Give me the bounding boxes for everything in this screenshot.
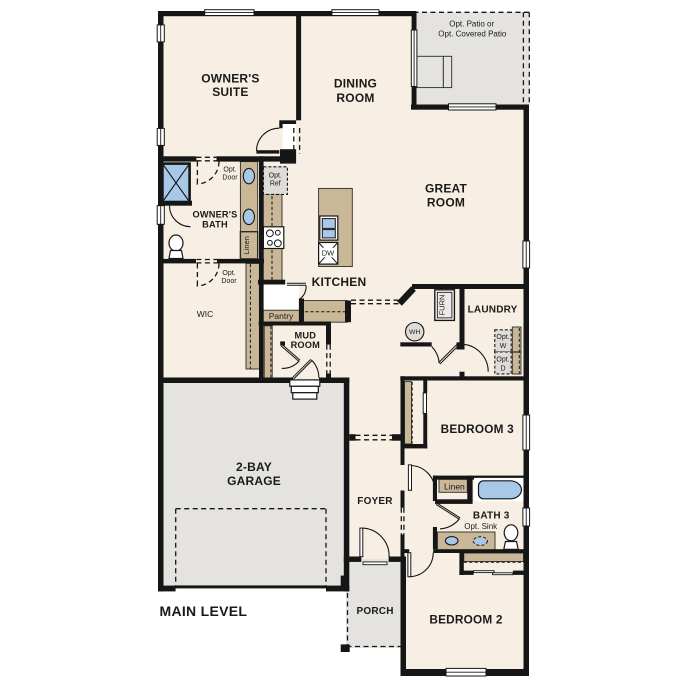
svg-text:Opt. Sink: Opt. Sink <box>464 522 498 531</box>
svg-text:Opt.: Opt. <box>496 357 509 364</box>
svg-text:KITCHEN: KITCHEN <box>312 275 367 289</box>
svg-text:BATH 3: BATH 3 <box>473 510 510 521</box>
svg-text:DINING: DINING <box>334 77 377 91</box>
svg-text:W: W <box>500 343 507 350</box>
svg-text:D: D <box>500 366 505 373</box>
svg-text:Opt.: Opt. <box>223 167 236 174</box>
svg-text:ROOM: ROOM <box>427 196 465 210</box>
svg-text:ROOM: ROOM <box>336 91 374 105</box>
svg-text:GARAGE: GARAGE <box>227 474 281 488</box>
svg-text:BEDROOM 2: BEDROOM 2 <box>429 613 502 627</box>
svg-text:LAUNDRY: LAUNDRY <box>468 304 518 315</box>
svg-text:Opt. Covered Patio: Opt. Covered Patio <box>438 30 507 39</box>
svg-text:Ref: Ref <box>270 181 281 188</box>
svg-text:OWNER'S: OWNER'S <box>201 71 259 85</box>
svg-text:Linen: Linen <box>444 482 465 492</box>
svg-text:Opt.: Opt. <box>222 270 235 277</box>
svg-text:MUD: MUD <box>295 330 317 340</box>
svg-text:ROOM: ROOM <box>291 340 321 350</box>
svg-text:OWNER'S: OWNER'S <box>193 210 238 220</box>
svg-text:Opt.: Opt. <box>269 173 282 180</box>
svg-text:MAIN LEVEL: MAIN LEVEL <box>160 603 248 619</box>
svg-text:BEDROOM 3: BEDROOM 3 <box>441 422 514 436</box>
svg-text:DW: DW <box>322 248 335 257</box>
svg-text:WIC: WIC <box>197 309 214 319</box>
svg-text:BATH: BATH <box>202 220 228 230</box>
svg-text:FOYER: FOYER <box>357 496 393 507</box>
svg-text:Door: Door <box>222 175 238 182</box>
svg-text:GREAT: GREAT <box>425 181 468 195</box>
svg-text:SUITE: SUITE <box>212 85 248 99</box>
svg-text:2-BAY: 2-BAY <box>236 460 272 474</box>
svg-text:PORCH: PORCH <box>357 606 394 617</box>
svg-text:FURN: FURN <box>438 295 447 316</box>
svg-text:Pantry: Pantry <box>269 311 294 321</box>
svg-text:Door: Door <box>221 278 237 285</box>
svg-text:Linen: Linen <box>242 236 251 254</box>
svg-text:WH: WH <box>409 329 420 336</box>
svg-text:Opt.: Opt. <box>496 334 509 341</box>
svg-text:Opt. Patio or: Opt. Patio or <box>449 20 494 29</box>
